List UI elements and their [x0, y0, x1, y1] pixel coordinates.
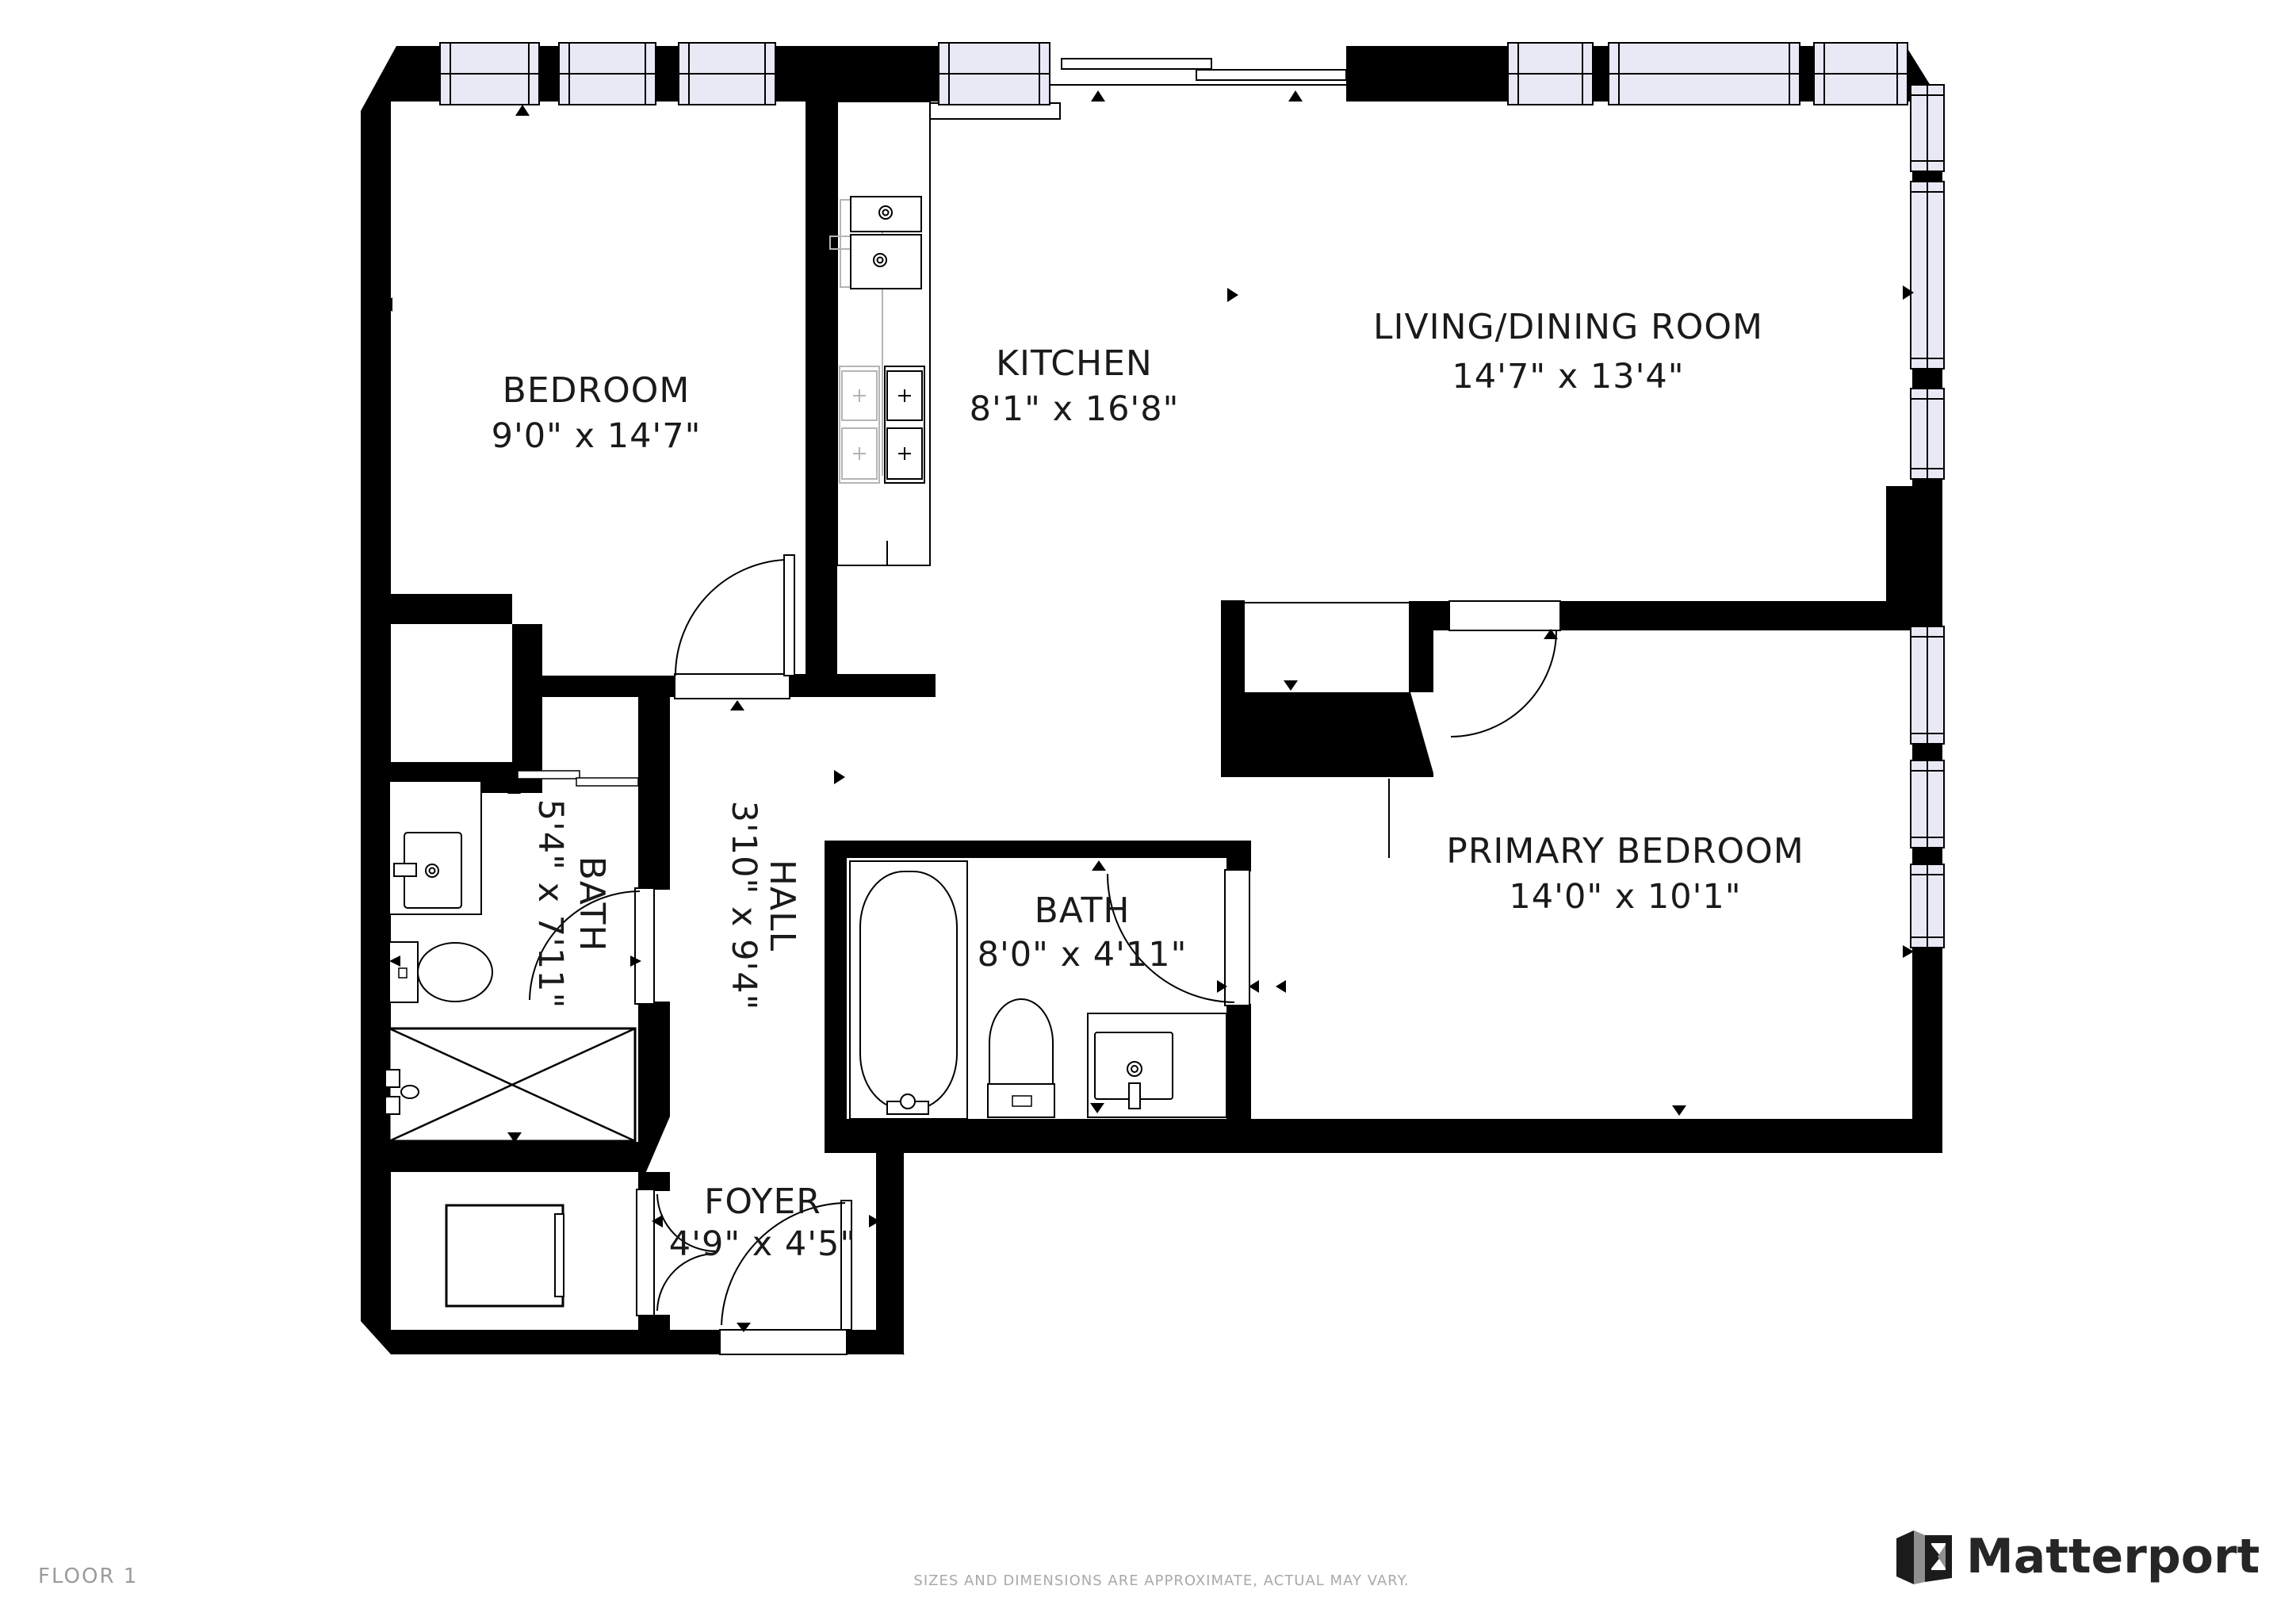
- label-kitchen-dims: 8'1" x 16'8": [970, 389, 1180, 429]
- window-primary-side-2: [1911, 760, 1944, 848]
- window-primary-side-3: [1911, 864, 1944, 948]
- label-bedroom-name: BEDROOM: [503, 370, 691, 411]
- window-living-2: [1609, 43, 1800, 105]
- label-hallbath: BATH 5'4" x 7'11": [530, 799, 612, 1009]
- wall-primary-top-a: [1409, 601, 1449, 630]
- floorplan-svg: BEDROOM 9'0" x 14'7" KITCHEN 8'1" x 16'8…: [0, 0, 2296, 1624]
- label-primary-name: PRIMARY BEDROOM: [1446, 831, 1804, 871]
- wall-bottom-b: [847, 1330, 904, 1354]
- closet-appliance: [446, 1205, 564, 1306]
- matterport-wordmark: Matterport: [1966, 1529, 2260, 1584]
- primary-vanity: [1088, 1013, 1226, 1117]
- arrow-living-mid: [1227, 288, 1238, 302]
- primary-toilet: [988, 999, 1054, 1117]
- matterport-logo: Matterport: [1896, 1529, 2260, 1584]
- label-bedroom-dims: 9'0" x 14'7": [492, 416, 702, 456]
- wall-hall-left-a: [638, 677, 670, 890]
- primary-tub: [850, 861, 967, 1119]
- window-living-3: [1814, 43, 1908, 105]
- floorplan-page: BEDROOM 9'0" x 14'7" KITCHEN 8'1" x 16'8…: [0, 0, 2296, 1624]
- hallbath-vanity: [389, 781, 481, 914]
- label-foyer-dims: 4'9" x 4'5": [669, 1224, 856, 1264]
- label-hall: HALL 3'10" x 9'4": [724, 801, 802, 1011]
- arrow-window-bedroom: [515, 105, 530, 116]
- window-living-side-2: [1911, 182, 1944, 369]
- bedroom-door: [675, 555, 794, 699]
- label-hall-name: HALL: [762, 860, 802, 952]
- label-pbath-name: BATH: [1035, 891, 1131, 931]
- window-bedroom-3: [679, 43, 775, 105]
- footer: FLOOR 1 SIZES AND DIMENSIONS ARE APPROXI…: [38, 1529, 2260, 1589]
- wall-kitchen-bottom: [790, 674, 936, 697]
- arrow-vestibule: [1276, 980, 1286, 993]
- arrow-slider-left: [1091, 90, 1105, 101]
- arrow-primary-bottom: [1672, 1105, 1686, 1116]
- primary-entry-door: [1449, 601, 1560, 737]
- label-hallbath-name: BATH: [572, 856, 612, 952]
- label-kitchen-name: KITCHEN: [996, 343, 1153, 384]
- label-pbath-dims: 8'0" x 4'11": [978, 935, 1188, 975]
- wall-pbath-top: [825, 841, 1251, 858]
- label-foyer-name: FOYER: [704, 1182, 821, 1222]
- arrow-bedroom-door: [730, 700, 744, 710]
- matterport-icon: [1896, 1530, 1952, 1584]
- window-kitchen: [939, 43, 1050, 105]
- label-living-dims: 14'7" x 13'4": [1452, 357, 1684, 396]
- wall-pbath-left: [825, 858, 847, 1119]
- disclaimer-text: SIZES AND DIMENSIONS ARE APPROXIMATE, AC…: [913, 1572, 1409, 1589]
- window-bedroom-1: [440, 43, 539, 105]
- wall-recess-connector: [1409, 630, 1433, 692]
- arrow-hall-right: [834, 770, 845, 784]
- wall-hall-diagonal: [638, 1106, 670, 1174]
- shower: [385, 1028, 635, 1141]
- walls: [361, 46, 1942, 1354]
- window-living-1: [1508, 43, 1593, 105]
- kitchen-sink: [830, 197, 921, 289]
- wall-recess-left: [1221, 600, 1245, 692]
- kitchen-counter: [837, 101, 930, 565]
- floor-label: FLOOR 1: [38, 1565, 138, 1588]
- wall-block-mid: [1221, 692, 1433, 777]
- window-bedroom-2: [559, 43, 656, 105]
- wall-bedroom-kitchen: [806, 46, 837, 697]
- wall-hallbath-bottom: [361, 1142, 642, 1172]
- label-primary-dims: 14'0" x 10'1": [1509, 877, 1741, 917]
- label-hall-dims: 3'10" x 9'4": [724, 801, 763, 1011]
- sliding-door-top: [1062, 59, 1346, 80]
- wall-pbath-right-b: [1226, 1004, 1251, 1119]
- wall-bottom-a: [361, 1330, 720, 1354]
- wall-hall-left-b: [638, 1002, 670, 1106]
- arrow-recess: [1284, 680, 1298, 691]
- arrow-pbath-top: [1092, 860, 1106, 871]
- wall-closet-stub-bottom: [638, 1315, 670, 1330]
- wall-foyer-right: [876, 1153, 904, 1330]
- window-living-side-3: [1911, 389, 1944, 479]
- label-living-name: LIVING/DINING ROOM: [1373, 307, 1763, 347]
- wall-primary-bottom: [825, 1119, 1942, 1153]
- arrow-slider-right: [1288, 90, 1303, 101]
- wall-bedroom-closet-top: [361, 594, 512, 624]
- wall-closet-stub-top: [638, 1172, 670, 1191]
- hallbath-toilet: [389, 942, 492, 1002]
- window-living-side-1: [1911, 85, 1944, 171]
- label-hallbath-dims: 5'4" x 7'11": [530, 799, 570, 1009]
- window-primary-side-1: [1911, 626, 1944, 744]
- wall-primary-top-b: [1560, 601, 1942, 630]
